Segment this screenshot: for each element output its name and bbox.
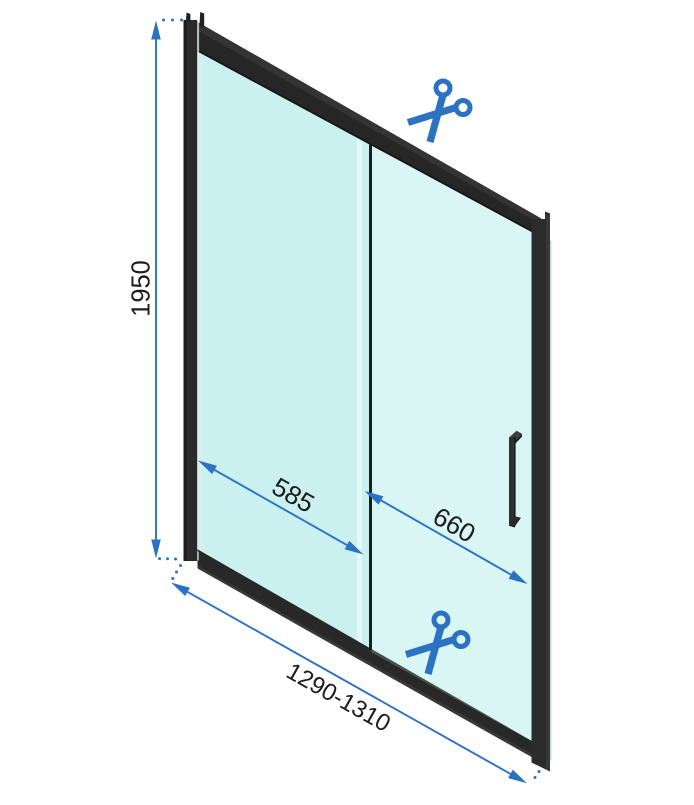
svg-text:1950: 1950 <box>127 260 155 317</box>
